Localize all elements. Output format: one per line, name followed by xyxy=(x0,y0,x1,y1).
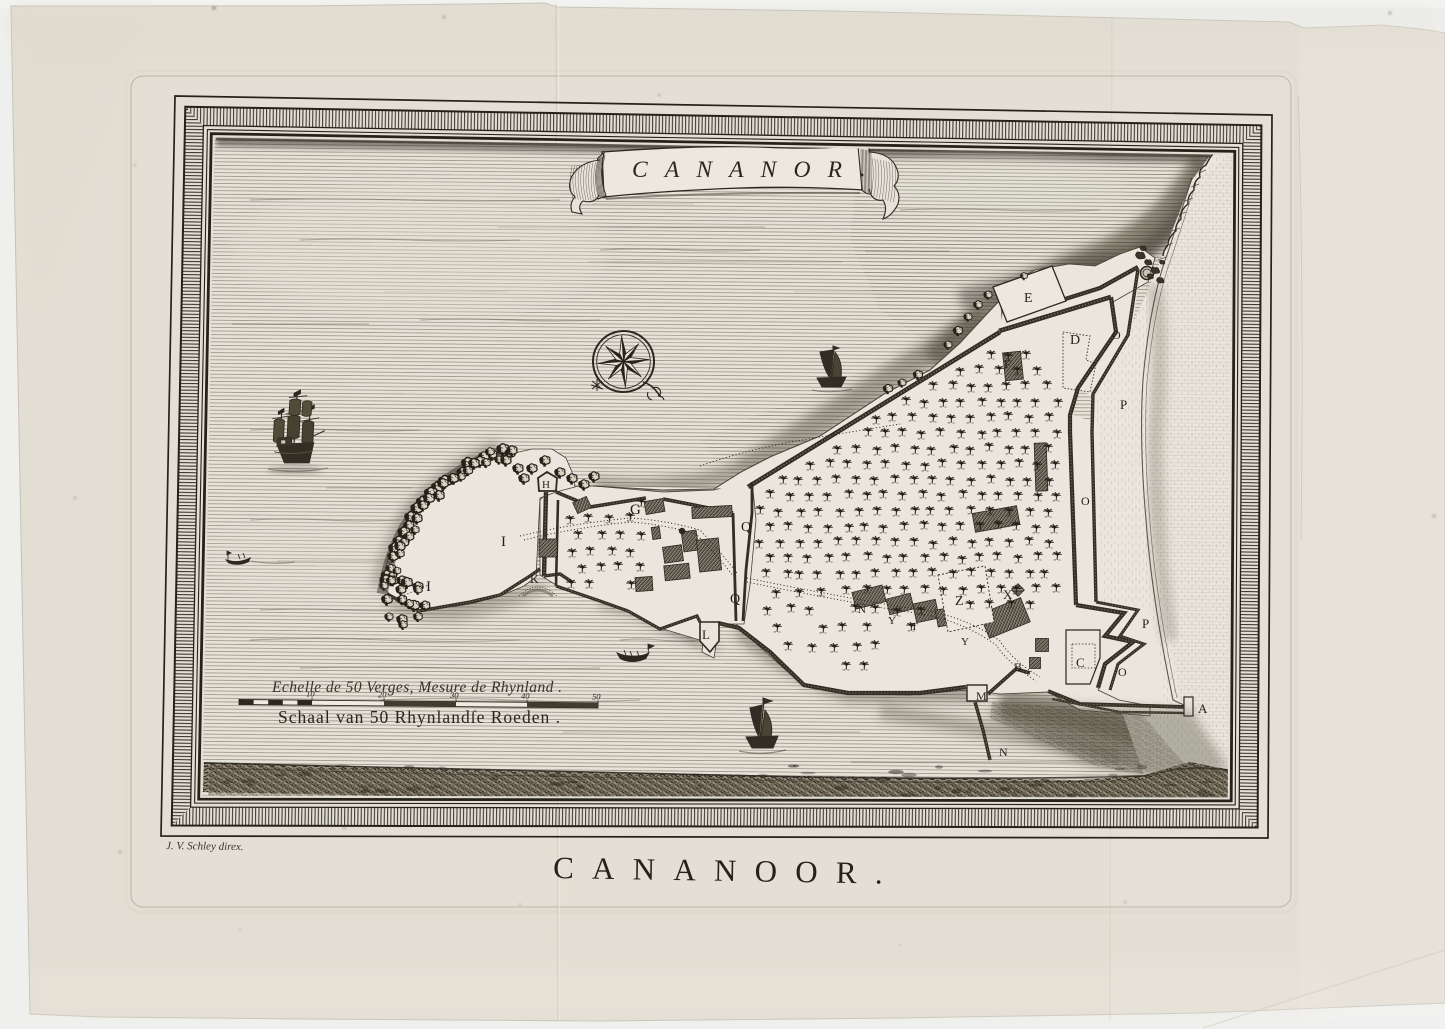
svg-text:50: 50 xyxy=(592,691,601,701)
svg-text:J. V. Schley direx.: J. V. Schley direx. xyxy=(166,840,244,853)
svg-text:F: F xyxy=(1004,357,1011,371)
svg-text:Z: Z xyxy=(955,594,964,609)
svg-text:N: N xyxy=(858,604,866,616)
svg-text:K: K xyxy=(530,572,539,586)
svg-text:L: L xyxy=(702,627,710,642)
svg-text:I: I xyxy=(426,579,431,595)
svg-text:O: O xyxy=(1118,665,1127,679)
svg-text:CANANOOR.: CANANOOR. xyxy=(553,850,898,891)
svg-text:Q: Q xyxy=(741,520,751,535)
svg-text:Schaal van 50 Rhynlandſe Roede: Schaal van 50 Rhynlandſe Roeden . xyxy=(278,707,560,727)
svg-text:Echelle de 50 Verges, Mesure d: Echelle de 50 Verges, Mesure de Rhynland… xyxy=(271,679,562,696)
svg-text:E: E xyxy=(1024,291,1033,306)
svg-text:C: C xyxy=(1076,655,1085,670)
svg-text:N: N xyxy=(999,745,1008,759)
svg-text:Y: Y xyxy=(961,636,969,648)
svg-text:H: H xyxy=(542,479,550,491)
svg-text:G: G xyxy=(630,502,641,518)
svg-text:X: X xyxy=(1003,587,1013,602)
svg-text:T: T xyxy=(911,621,918,633)
svg-text:O: O xyxy=(1081,494,1090,508)
svg-text:Q: Q xyxy=(730,592,740,607)
svg-text:I: I xyxy=(501,534,506,550)
svg-text:30: 30 xyxy=(449,690,459,700)
svg-text:B: B xyxy=(1014,660,1022,674)
svg-text:40: 40 xyxy=(521,691,530,701)
svg-text:20: 20 xyxy=(378,689,387,699)
svg-text:P: P xyxy=(1142,616,1149,631)
svg-text:D: D xyxy=(1070,333,1080,348)
svg-text:O: O xyxy=(1112,328,1121,342)
svg-text:CANANOR: CANANOR xyxy=(632,157,854,183)
svg-text:10: 10 xyxy=(306,689,315,699)
svg-text:P: P xyxy=(1120,397,1127,412)
svg-text:M: M xyxy=(976,689,987,703)
svg-text:Y: Y xyxy=(888,615,896,627)
svg-text:A: A xyxy=(1198,701,1208,716)
